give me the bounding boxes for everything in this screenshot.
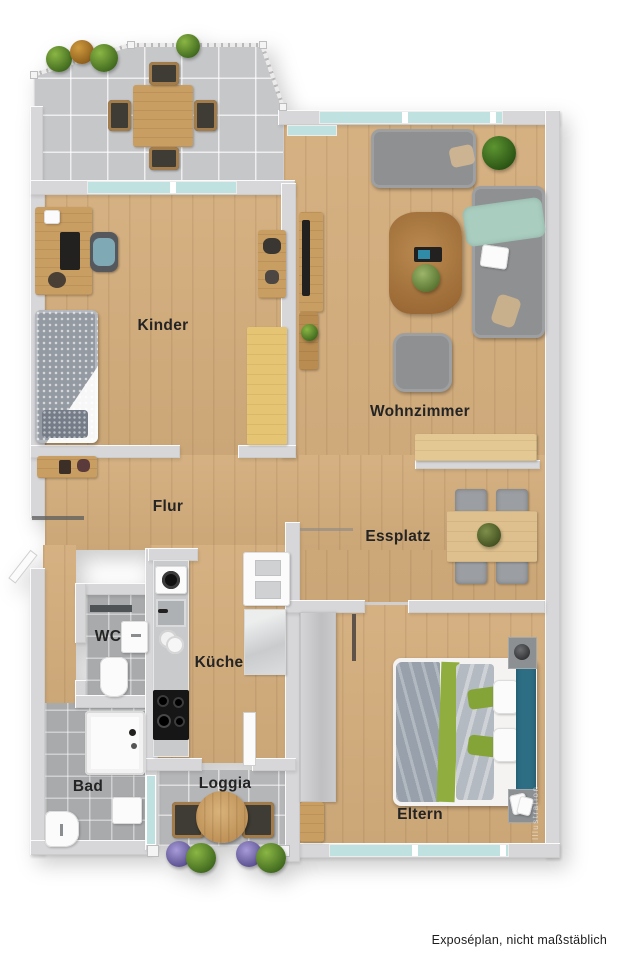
dish-rack (159, 630, 186, 656)
terrace-plant-1 (46, 46, 72, 72)
wc-sink (121, 621, 148, 653)
wohnzimmer-plant-small (301, 324, 318, 341)
shower (85, 711, 145, 775)
shoes-2 (77, 459, 90, 472)
kitchen-faucet (158, 609, 168, 613)
kinder-laptop (60, 232, 80, 270)
wall-kinder-bottom-right (238, 445, 296, 458)
watermark-text: Illustration (531, 740, 540, 840)
bath-mat (112, 797, 142, 824)
railing-post-4 (279, 103, 287, 111)
wc-toilet (100, 657, 128, 697)
window-eltern (330, 845, 508, 856)
kinder-desk-chair-seat (93, 238, 115, 266)
halfwall-essplatz (415, 460, 540, 469)
eltern-door-leaf (352, 614, 356, 661)
loggia-plant-green-2 (256, 843, 286, 873)
toilet-flush (60, 824, 63, 836)
drawer-2 (255, 581, 281, 599)
terrace-plant-3 (90, 44, 118, 72)
wall-loggia-top-left (145, 758, 202, 771)
nightstand-top (508, 637, 537, 669)
book-on-sofa (480, 244, 510, 270)
sideboard (415, 434, 537, 461)
wall-terrace-left (30, 106, 43, 184)
tablet-remote (414, 247, 442, 262)
dining-chair-4 (496, 559, 528, 584)
burner-4 (174, 716, 185, 727)
kinder-bed (35, 310, 98, 443)
kinder-bed-pillow (42, 410, 88, 438)
wc-faucet (131, 634, 141, 637)
essplatz-edge-line (300, 528, 353, 531)
tv (302, 220, 310, 296)
tv-lowboard-2 (299, 312, 318, 370)
kitchen-sink (156, 599, 186, 627)
railing-post-3 (259, 41, 267, 49)
eltern-blanket-gray (396, 662, 440, 802)
lamp (514, 644, 530, 660)
terrace-chair-bottom (149, 147, 179, 170)
window-wohnzimmer-small (288, 126, 336, 135)
kinder-wardrobe (247, 327, 287, 445)
wall-wc-top (75, 583, 152, 595)
antler-decor (263, 238, 281, 254)
plan-caption: Exposéplan, nicht maßstäblich (432, 933, 607, 947)
armchair (393, 333, 452, 392)
window-bad-frosted (146, 775, 156, 845)
eltern-wardrobe (300, 612, 336, 802)
label-eltern: Eltern (397, 806, 443, 824)
tablet-screen (418, 250, 430, 259)
shower-fixture (129, 729, 136, 736)
terrace-table (133, 85, 193, 147)
label-wc: WC (95, 628, 121, 646)
entrance-shelf-line (32, 516, 84, 520)
terrace-chair-top (149, 62, 179, 85)
wall-eltern-top-right (408, 600, 545, 613)
label-essplatz: Essplatz (365, 528, 430, 546)
burner-2 (173, 697, 184, 708)
kinder-wall-table (258, 230, 286, 298)
coffee-table-plant (412, 264, 440, 292)
burner-1 (157, 695, 169, 707)
floorplan: Kinder Wohnzimmer Flur Essplatz WC Küche… (0, 0, 632, 972)
wall-left-lower (30, 568, 45, 855)
label-kueche: Küche (195, 654, 244, 672)
flur-shoe-bench (37, 456, 97, 478)
wc-shelf (90, 605, 132, 612)
kinder-headphones (48, 272, 66, 288)
railing-post-2 (127, 41, 135, 49)
label-flur: Flur (153, 498, 183, 516)
plate-2 (166, 636, 184, 654)
eltern-duvet-light (456, 664, 494, 800)
loggia-table (196, 791, 248, 843)
bad-toilet (45, 811, 79, 847)
kinder-desk-papers (44, 210, 60, 224)
washing-machine (155, 566, 187, 594)
loggia-post-left (147, 845, 159, 857)
window-kinder (88, 182, 236, 193)
floorplan-page: Kinder Wohnzimmer Flur Essplatz WC Küche… (0, 0, 632, 972)
burner-3 (157, 714, 171, 728)
washer-door (162, 571, 180, 589)
dining-chair-3 (455, 559, 487, 584)
label-loggia: Loggia (199, 775, 252, 793)
label-wohnzimmer: Wohnzimmer (370, 403, 470, 421)
drawer-1 (255, 560, 281, 576)
label-kinder: Kinder (138, 317, 189, 335)
loggia-door-leaf (243, 712, 256, 766)
wohnzimmer-plant-big (482, 136, 516, 170)
window-wohnzimmer (320, 112, 502, 123)
shoes (59, 460, 71, 474)
dining-table-plant (477, 523, 501, 547)
cooktop (153, 690, 189, 740)
fridge (244, 609, 286, 675)
wall-wc-left-upper (75, 583, 86, 643)
coffee-table (389, 212, 462, 314)
wall-loggia-top-right (252, 758, 296, 771)
wall-right (545, 110, 560, 858)
corridor-strip-floor (43, 545, 76, 710)
loggia-plant-green-1 (186, 843, 216, 873)
terrace-plant-4 (176, 34, 200, 58)
shower-drain (131, 743, 137, 749)
railing-post-1 (30, 71, 38, 79)
label-bad: Bad (73, 778, 103, 796)
terrace-chair-left (108, 100, 131, 131)
terrace-chair-right (194, 100, 217, 131)
kitchen-drawer-cabinet (243, 552, 290, 606)
eltern-dresser (300, 802, 324, 842)
deco-object (265, 270, 279, 284)
